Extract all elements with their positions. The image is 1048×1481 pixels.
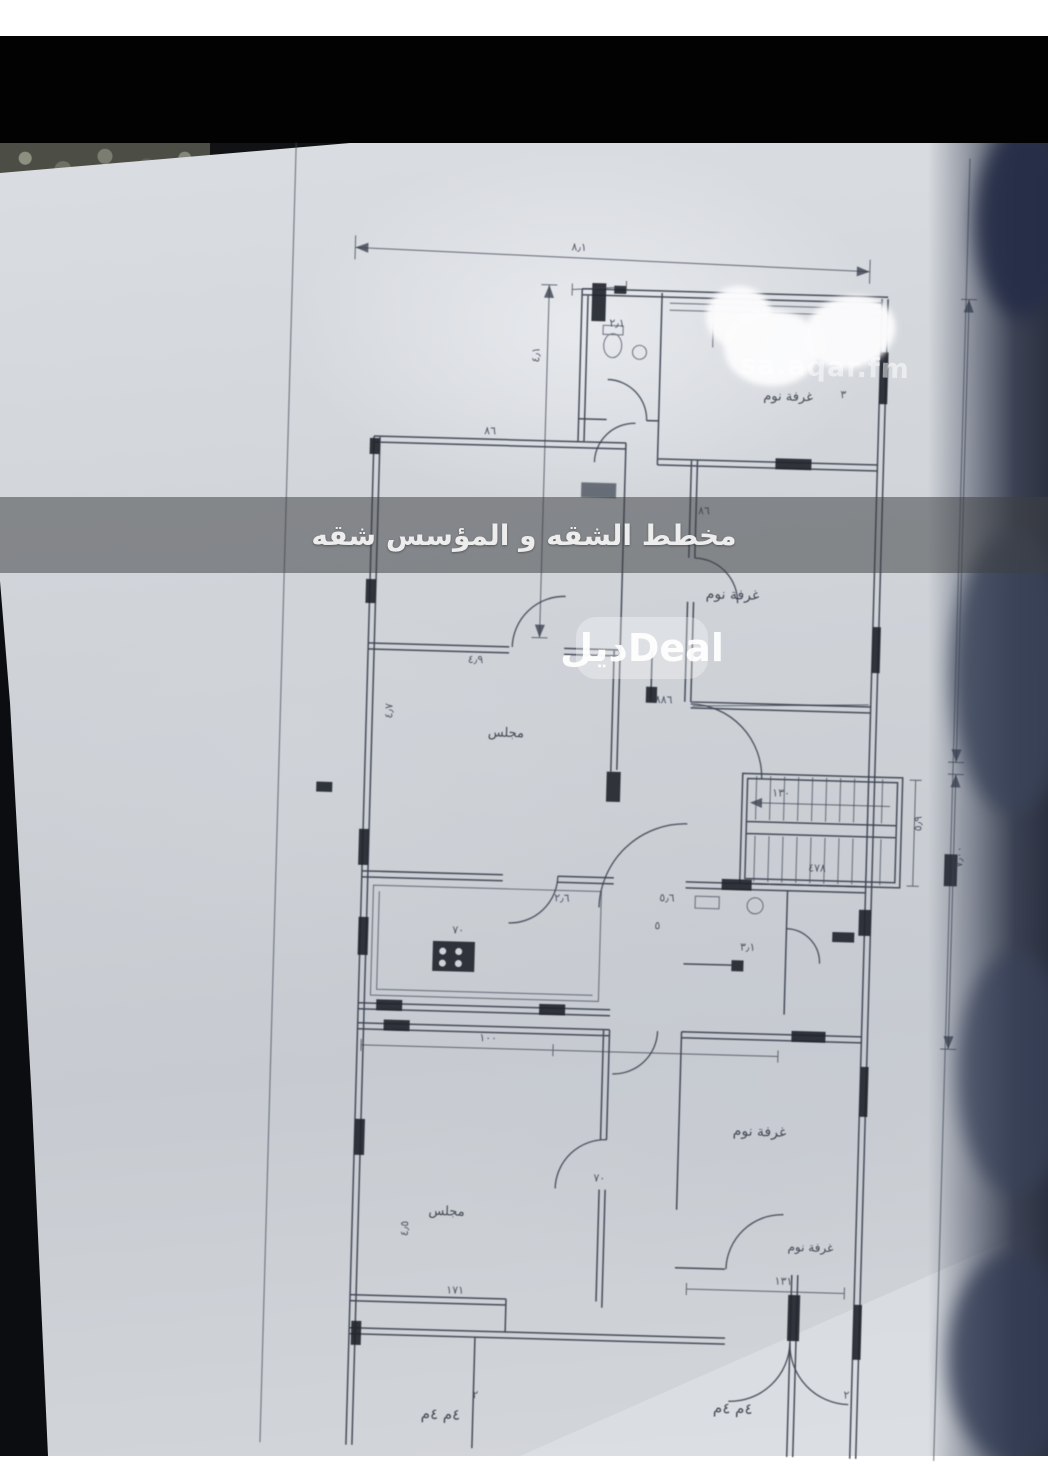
screenshot-root: غرفة نومغرفة نوممجلسغرفة نوممجلسغرفة نوم… <box>0 0 1048 1481</box>
dimension-label: ٨٦ <box>484 424 496 437</box>
dimension-label: ٥ <box>654 919 660 932</box>
dimension-label: ٤٫٧ <box>382 703 395 719</box>
dimension-label: ٧٫٠٠ <box>952 846 966 868</box>
dimension-label: ٤٫٥ <box>398 1220 411 1236</box>
dimension-label: ٣ <box>840 388 846 401</box>
handwritten-note: ٤م ٤م <box>713 1399 753 1418</box>
room-label: غرفة نوم <box>763 389 813 405</box>
caption-text: مخطط الشقه و المؤسس شقه <box>311 519 736 552</box>
dimension-label: ٥٫٦ <box>659 891 675 904</box>
deal-watermark-text: ديلDeal <box>560 626 724 670</box>
dimension-label: ٤٫١ <box>529 347 542 363</box>
dimension-label: ٥٫٩ <box>911 816 924 832</box>
dimension-label: ٤٫٩ <box>468 653 484 666</box>
dimension-label: ١٠٠ <box>479 1031 497 1044</box>
vestibule-cabinet <box>581 483 615 498</box>
dimension-label: ١٣١ <box>774 1275 792 1288</box>
stove-unit <box>432 941 475 972</box>
site-watermark: sa.aqar.fm <box>740 350 911 385</box>
wall-window-segments <box>301 276 974 1363</box>
dimension-label: ٨٫١ <box>571 240 587 253</box>
room-label: مجلس <box>428 1204 465 1220</box>
room-label: غرفة نوم <box>787 1240 833 1256</box>
plan-labels: غرفة نومغرفة نوممجلسغرفة نوممجلسغرفة نوم… <box>363 236 983 1438</box>
dimension-label: ٢٫١ <box>609 317 625 330</box>
dimension-label: ٢ <box>843 1388 849 1401</box>
dimension-label: ٤٧٨ <box>808 861 826 874</box>
caption-banner: مخطط الشقه و المؤسس شقه <box>0 497 1048 573</box>
dimension-label: ٢٫٦ <box>554 891 570 904</box>
handwritten-note: ٤م ٤م <box>421 1405 461 1424</box>
dimension-label: ٢ <box>472 1388 478 1401</box>
room-label: غرفة نوم <box>706 586 760 603</box>
dimension-label: ٣٫١ <box>740 940 756 953</box>
deal-watermark: ديلDeal <box>576 617 708 679</box>
dimension-label: ٧٠ <box>452 923 464 936</box>
dimension-label: ١٧١ <box>446 1283 464 1296</box>
dimension-label: ٨٨٦ <box>655 693 673 706</box>
dimension-label: ٧٠ <box>593 1171 605 1184</box>
room-label: غرفة نوم <box>733 1123 787 1140</box>
room-label: مجلس <box>488 725 525 741</box>
floor-plan-drawing: غرفة نومغرفة نوممجلسغرفة نوممجلسغرفة نوم… <box>0 0 1048 1481</box>
dimension-label: ١٣٠ <box>772 786 790 799</box>
